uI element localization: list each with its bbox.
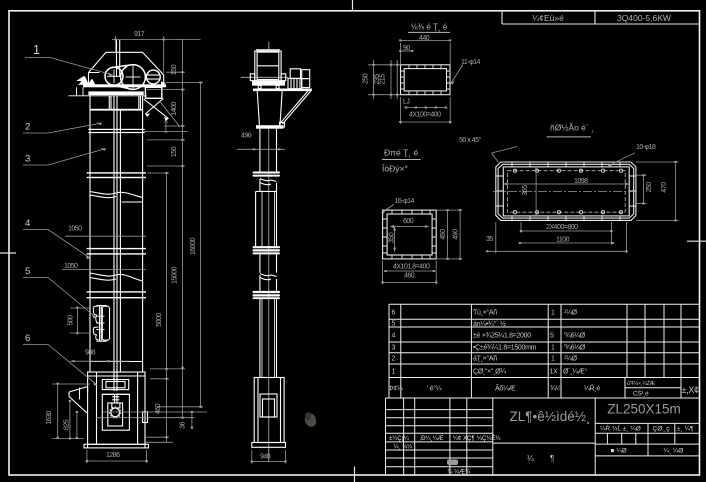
svg-text:ZL¶•ê½ìdé½¸: ZL¶•ê½ìdé½¸ (509, 409, 590, 424)
svg-text:1X: 1X (550, 369, 559, 376)
svg-text:¼: ¼ (527, 454, 534, 463)
svg-text:3: 3 (25, 154, 30, 165)
svg-text:Ø´¸¼Æ°: Ø´¸¼Æ° (563, 368, 587, 376)
svg-text:¼Ŕ ¾Ĺ ±¸ ¼Ø: ¼Ŕ ¾Ĺ ±¸ ¼Ø (600, 424, 641, 433)
svg-text:ñØ½Åo é´ ¸: ñØ½Åo é´ ¸ (550, 123, 594, 133)
svg-text:ÇØ¸"×"¸Ø¼: ÇØ¸"×"¸Ø¼ (473, 369, 506, 376)
svg-text:¼¢ XÇ¶: ¼¢ XÇ¶ (453, 436, 475, 442)
svg-text:5: 5 (392, 321, 396, 328)
svg-text:10-φ18: 10-φ18 (636, 144, 656, 151)
svg-text:ĆŚ¹¸é: ĆŚ¹¸é (633, 389, 649, 398)
svg-text:36: 36 (180, 422, 187, 429)
svg-text:2X400=800: 2X400=800 (546, 224, 578, 231)
svg-text:±é ×¾25¼1.8=2000: ±é ×¾25¼1.8=2000 (473, 333, 531, 340)
svg-text:450: 450 (440, 229, 447, 240)
svg-text:1: 1 (551, 345, 555, 352)
svg-text:1: 1 (551, 356, 555, 363)
svg-text:470: 470 (661, 182, 668, 193)
svg-text:50 x 45°: 50 x 45° (459, 136, 481, 144)
svg-text:6: 6 (392, 310, 396, 317)
svg-text:11-φ14: 11-φ14 (461, 59, 481, 66)
svg-text:365: 365 (522, 185, 529, 196)
svg-text:¹¼Ø: ¹¼Ø (564, 310, 578, 317)
svg-text:1: 1 (392, 369, 396, 376)
svg-text:1: 1 (551, 310, 555, 317)
svg-text:825: 825 (64, 419, 71, 430)
svg-text:LJ: LJ (403, 99, 409, 106)
svg-text:Φ¢¼: Φ¢¼ (388, 386, 403, 393)
svg-text:¹¼Ø: ¹¼Ø (564, 356, 578, 363)
svg-text:988: 988 (85, 350, 96, 357)
svg-text:ÇØ ¸ç: ÇØ ¸ç (653, 426, 671, 433)
svg-text:5: 5 (550, 333, 554, 340)
svg-text:¾¼: ¾¼ (550, 386, 562, 393)
svg-text:ZL250X15m: ZL250X15m (607, 402, 681, 417)
svg-text:496: 496 (241, 133, 252, 140)
svg-text:1100: 1100 (556, 237, 570, 244)
svg-text:350: 350 (389, 232, 396, 243)
svg-text:¼¢Eù»é: ¼¢Eù»é (532, 13, 564, 23)
svg-text:1098: 1098 (574, 178, 588, 185)
svg-text:4: 4 (25, 218, 30, 229)
svg-text:5000: 5000 (156, 313, 163, 327)
svg-text:600: 600 (403, 218, 414, 225)
svg-text:250: 250 (646, 182, 653, 193)
svg-text:Tü¸×°Añ: Tü¸×°Añ (473, 309, 497, 317)
svg-text:ū'Ŧ¼×¸¼ŹÆ: ū'Ŧ¼×¸¼ŹÆ (627, 380, 656, 387)
svg-text:¸¼ ¼Æ¼: ¸¼ ¼Æ¼ (446, 470, 472, 476)
svg-text:460: 460 (155, 403, 162, 414)
svg-text:¼Ŕ¸é: ¼Ŕ¸é (584, 384, 600, 393)
svg-text:•Ç±é¾¼1.8=1500mm: •Ç±é¾¼1.8=1500mm (473, 345, 537, 352)
svg-text:⅛⅜ é Ţ¸ é: ⅛⅜ é Ţ¸ é (411, 23, 448, 32)
svg-text:440: 440 (419, 35, 430, 42)
svg-text:±¸ ¼¶: ±¸ ¼¶ (677, 426, 694, 433)
svg-text:ĪòĐý×°: ĪòĐý×° (382, 164, 408, 174)
svg-text:'¾6¼Ø: '¾6¼Ø (564, 345, 586, 352)
svg-text:¶: ¶ (550, 454, 554, 463)
svg-text:16000: 16000 (190, 237, 197, 255)
svg-text:4: 4 (392, 333, 396, 340)
svg-text:150: 150 (171, 64, 178, 75)
svg-text:±¼Ç(¼: ±¼Ç(¼ (389, 436, 410, 442)
svg-text:1286: 1286 (106, 452, 120, 459)
svg-text:¼¸ ¾¼: ¼¸ ¾¼ (394, 445, 414, 451)
svg-text:4X100=400: 4X100=400 (409, 112, 441, 119)
svg-text:'¾6¼Ø: '¾6¼Ø (564, 333, 586, 340)
svg-text:áņ¼•¾°´¸½ ¸: áņ¼•¾°´¸½ ¸ (473, 320, 509, 328)
svg-text:500: 500 (68, 315, 75, 326)
svg-text:90: 90 (403, 45, 410, 52)
svg-text:1630: 1630 (46, 411, 53, 425)
svg-text:5: 5 (25, 266, 30, 277)
svg-text:3: 3 (392, 345, 396, 352)
svg-text:15000: 15000 (172, 266, 179, 284)
svg-text:1400: 1400 (171, 102, 178, 116)
svg-text:3Q400-5.6KW: 3Q400-5.6KW (617, 13, 671, 23)
svg-text:4X101.8=400: 4X101.8=400 (393, 264, 430, 271)
svg-text:2: 2 (392, 356, 396, 363)
svg-text:2: 2 (25, 122, 30, 133)
svg-text:150: 150 (171, 146, 178, 157)
svg-text:490: 490 (453, 229, 460, 240)
svg-text:917: 917 (134, 31, 145, 38)
svg-text:215: 215 (380, 74, 387, 85)
svg-text:1050: 1050 (68, 226, 82, 233)
svg-text:1050: 1050 (64, 263, 78, 270)
svg-text:6: 6 (25, 333, 30, 344)
svg-text:460: 460 (404, 273, 415, 280)
svg-text:35: 35 (486, 236, 493, 243)
svg-text:¼Ç¼É¼: ¼Ç¼É¼ (477, 435, 501, 442)
svg-text:1: 1 (33, 43, 40, 57)
svg-text:áŢ¸×°Añ: áŢ¸×°Añ (473, 355, 497, 363)
svg-text:¼¸ ¼Ø: ¼¸ ¼Ø (664, 448, 684, 455)
svg-text:,Đ¼¸¼Æ: ,Đ¼¸¼Æ (420, 436, 444, 442)
svg-text:±,X¢: ±,X¢ (682, 385, 700, 395)
svg-text:940: 940 (260, 454, 271, 461)
svg-text:Đπé Ţ¸ é: Đπé Ţ¸ é (384, 148, 418, 158)
svg-text:250: 250 (363, 73, 370, 84)
svg-text:Ăõ¼Æ: Ăõ¼Æ (495, 384, 515, 393)
svg-text:' é°¼: ' é°¼ (427, 385, 442, 393)
svg-text:16-φ14: 16-φ14 (395, 198, 415, 205)
svg-text:■ ¼Ø: ■ ¼Ø (611, 448, 627, 455)
